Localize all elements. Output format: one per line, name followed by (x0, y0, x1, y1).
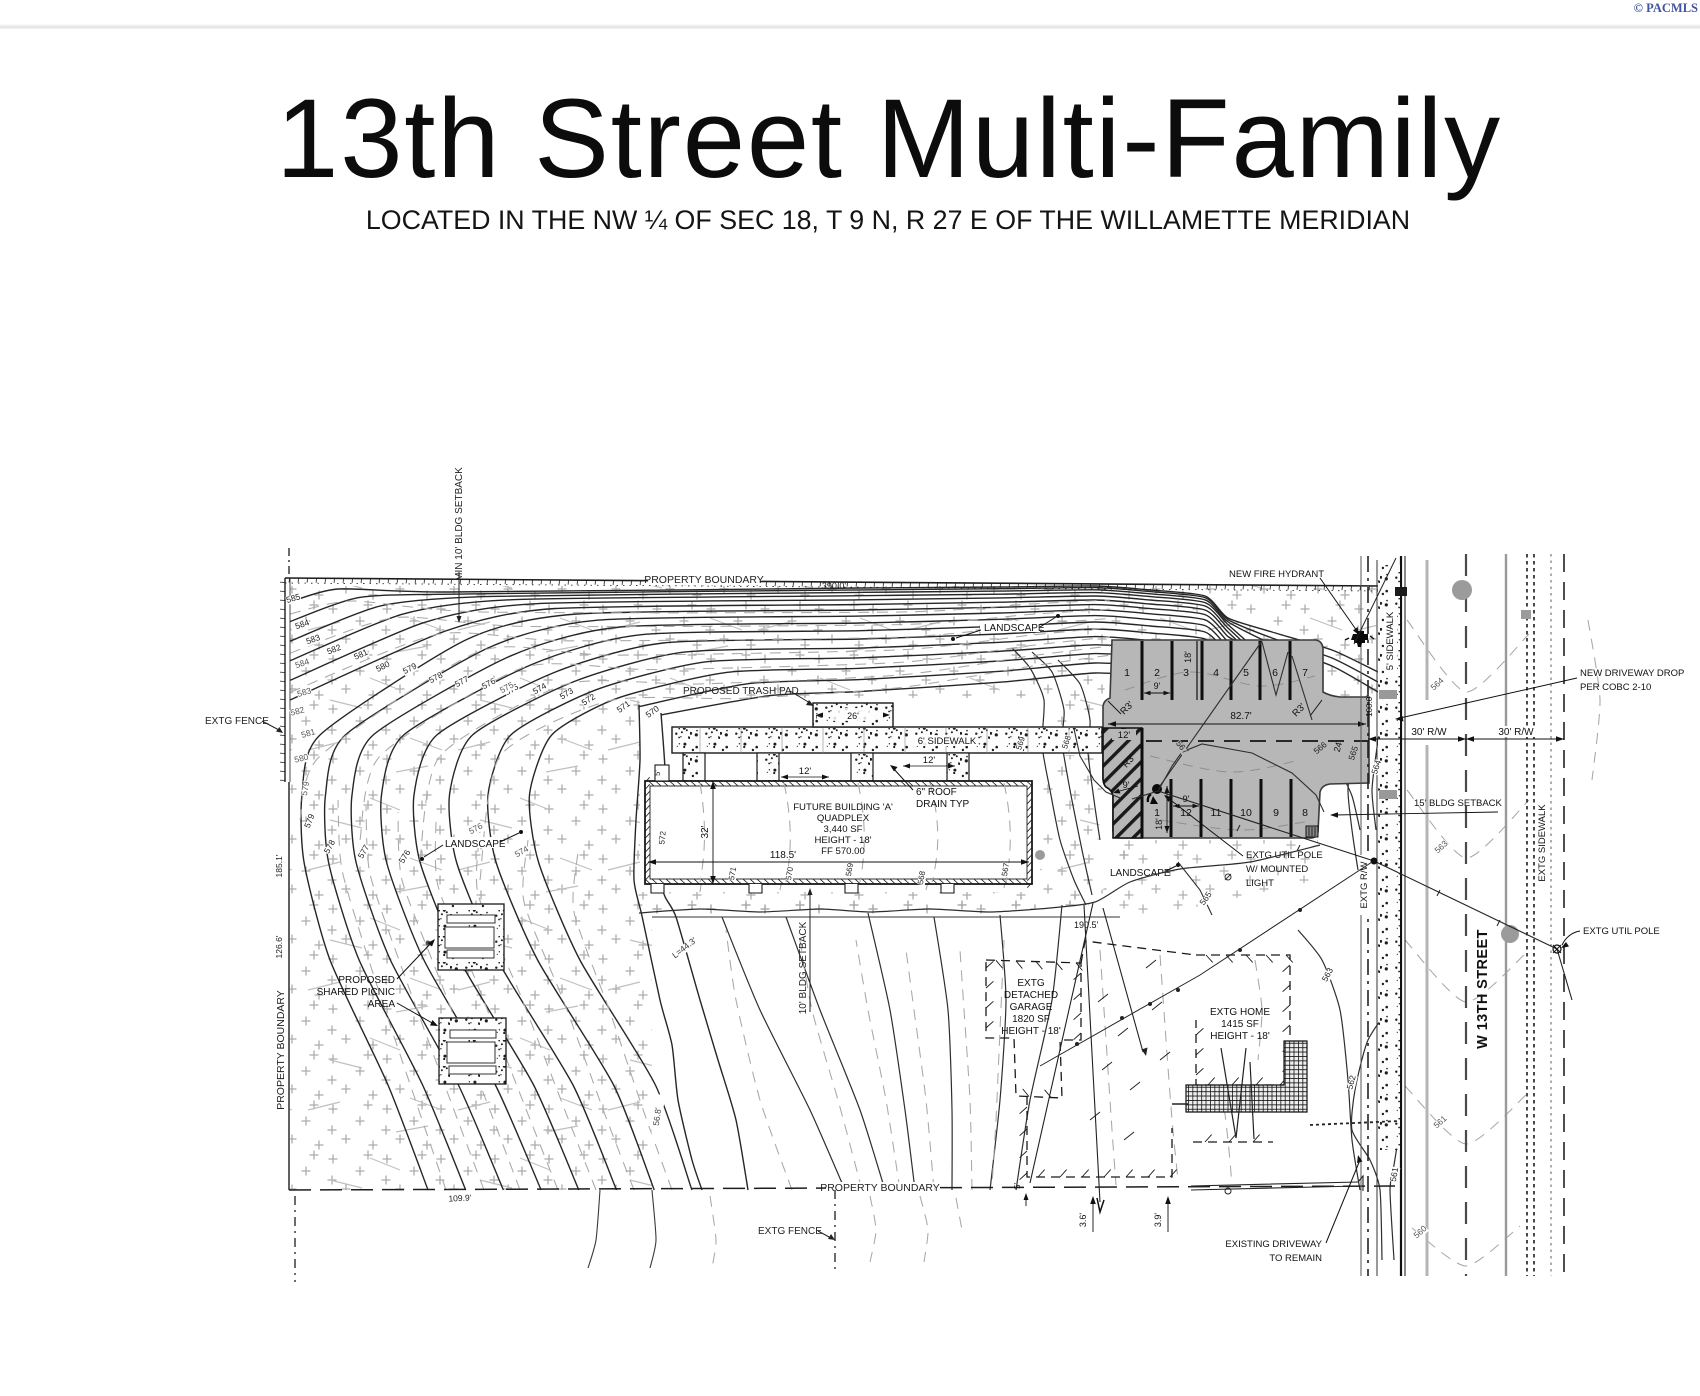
svg-text:118.5': 118.5' (770, 850, 796, 861)
svg-text:8: 8 (1302, 807, 1308, 819)
svg-text:MIN 10' BLDG SETBACK: MIN 10' BLDG SETBACK (454, 467, 465, 581)
svg-text:185.1': 185.1' (274, 854, 284, 877)
svg-text:32': 32' (700, 825, 711, 838)
svg-text:18': 18' (1154, 818, 1164, 830)
svg-text:10: 10 (1240, 807, 1252, 819)
svg-text:100.0': 100.0' (1365, 695, 1374, 717)
svg-text:EXTG: EXTG (1017, 978, 1044, 989)
svg-text:PROPOSED: PROPOSED (338, 975, 395, 986)
svg-text:LANDSCAPE: LANDSCAPE (1110, 868, 1171, 879)
svg-text:5: 5 (1243, 667, 1249, 679)
svg-text:EXTG HOME: EXTG HOME (1210, 1007, 1270, 1018)
svg-text:6: 6 (1272, 667, 1278, 679)
svg-text:12': 12' (799, 766, 812, 777)
svg-text:HEIGHT - 18': HEIGHT - 18' (1001, 1026, 1061, 1037)
svg-text:PROPOSED TRASH PAD: PROPOSED TRASH PAD (683, 686, 799, 697)
svg-text:PER COBC 2-10: PER COBC 2-10 (1580, 682, 1651, 693)
svg-text:DRAIN TYP: DRAIN TYP (916, 799, 969, 810)
svg-text:12': 12' (1118, 730, 1131, 741)
svg-text:3,440 SF: 3,440 SF (824, 824, 863, 835)
svg-text:5': 5' (1013, 1183, 1022, 1189)
svg-text:3.6': 3.6' (1078, 1213, 1088, 1228)
svg-text:HEIGHT - 18': HEIGHT - 18' (1210, 1031, 1270, 1042)
svg-text:390.0': 390.0' (822, 581, 847, 591)
svg-text:LIGHT: LIGHT (1246, 878, 1274, 889)
svg-text:W 13TH STREET: W 13TH STREET (1475, 929, 1491, 1049)
svg-text:15' BLDG SETBACK: 15' BLDG SETBACK (1414, 798, 1503, 809)
svg-text:NEW DRIVEWAY DROP: NEW DRIVEWAY DROP (1580, 668, 1684, 679)
svg-text:18': 18' (1183, 651, 1193, 663)
svg-text:SHARED PICNIC: SHARED PICNIC (317, 987, 395, 998)
svg-text:© PACMLS: © PACMLS (1634, 1, 1698, 15)
svg-text:LANDSCAPE: LANDSCAPE (445, 839, 506, 850)
svg-text:12': 12' (923, 755, 936, 766)
svg-text:EXISTING DRIVEWAY: EXISTING DRIVEWAY (1225, 1239, 1322, 1250)
svg-text:30' R/W: 30' R/W (1411, 727, 1447, 738)
svg-text:109.9': 109.9' (448, 1192, 472, 1203)
svg-text:5': 5' (653, 770, 662, 776)
svg-text:4: 4 (1213, 667, 1219, 679)
svg-text:EXTG SIDEWALK: EXTG SIDEWALK (1537, 804, 1548, 882)
svg-text:6' SIDEWALK: 6' SIDEWALK (918, 736, 977, 747)
svg-text:DETACHED: DETACHED (1004, 990, 1058, 1001)
svg-text:LANDSCAPE: LANDSCAPE (984, 623, 1045, 634)
svg-text:QUADPLEX: QUADPLEX (817, 813, 870, 824)
svg-text:1820 SF: 1820 SF (1012, 1014, 1050, 1025)
svg-text:FUTURE BUILDING 'A': FUTURE BUILDING 'A' (793, 802, 893, 813)
svg-text:1415 SF: 1415 SF (1221, 1019, 1259, 1030)
svg-text:1: 1 (1124, 667, 1130, 679)
svg-text:EXTG FENCE: EXTG FENCE (205, 716, 269, 727)
svg-text:1: 1 (1154, 807, 1160, 819)
svg-text:9': 9' (1154, 681, 1161, 691)
svg-text:FF 570.00: FF 570.00 (821, 846, 865, 857)
svg-text:HEIGHT - 18': HEIGHT - 18' (814, 835, 871, 846)
svg-text:30' R/W: 30' R/W (1498, 727, 1534, 738)
svg-text:EXTG UTIL POLE: EXTG UTIL POLE (1583, 926, 1660, 937)
svg-text:EXTG FENCE: EXTG FENCE (758, 1226, 822, 1237)
svg-text:6" ROOF: 6" ROOF (916, 787, 957, 798)
svg-text:PROPERTY BOUNDARY: PROPERTY BOUNDARY (644, 574, 764, 586)
svg-text:TO REMAIN: TO REMAIN (1269, 1253, 1322, 1264)
svg-text:26': 26' (847, 711, 859, 721)
svg-text:3.9': 3.9' (1153, 1213, 1163, 1228)
svg-text:EXTG R/W: EXTG R/W (1359, 861, 1370, 908)
svg-text:572: 572 (657, 830, 667, 845)
svg-text:NEW FIRE HYDRANT: NEW FIRE HYDRANT (1229, 569, 1324, 580)
svg-text:W/ MOUNTED: W/ MOUNTED (1246, 864, 1308, 875)
svg-text:190.5': 190.5' (1074, 920, 1099, 930)
svg-text:9: 9 (1273, 807, 1279, 819)
svg-text:5' SIDEWALK: 5' SIDEWALK (1385, 611, 1396, 670)
svg-text:PROPERTY BOUNDARY: PROPERTY BOUNDARY (275, 990, 287, 1110)
svg-text:2: 2 (1154, 667, 1160, 679)
svg-text:PROPERTY BOUNDARY: PROPERTY BOUNDARY (820, 1182, 940, 1194)
svg-text:3: 3 (1183, 667, 1189, 679)
svg-text:EXTG UTIL POLE: EXTG UTIL POLE (1246, 850, 1323, 861)
svg-text:10' BLDG SETBACK: 10' BLDG SETBACK (798, 921, 809, 1014)
svg-text:LOCATED IN THE NW ¼ OF SEC 18,: LOCATED IN THE NW ¼ OF SEC 18, T 9 N, R … (366, 205, 1410, 235)
svg-text:AREA: AREA (368, 999, 396, 1010)
svg-text:GARAGE: GARAGE (1010, 1002, 1053, 1013)
svg-text:7: 7 (1302, 667, 1308, 679)
svg-text:126.6': 126.6' (274, 935, 284, 958)
svg-text:13th Street Multi-Family: 13th Street Multi-Family (276, 76, 1502, 201)
svg-text:82.7': 82.7' (1230, 711, 1251, 722)
